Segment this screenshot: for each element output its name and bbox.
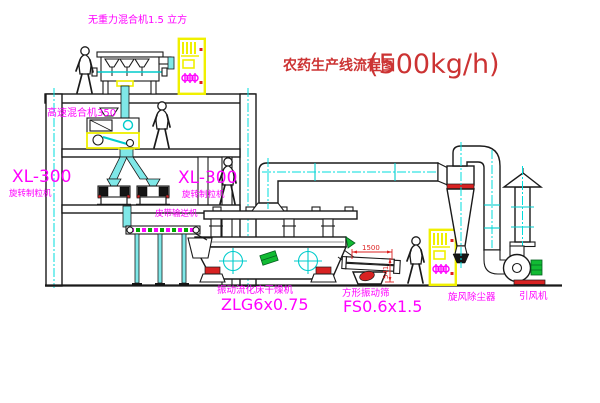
flow-arrow xyxy=(346,237,355,248)
screen-deck xyxy=(342,257,401,274)
label-screen-model: FS0.6x1.5 xyxy=(343,297,422,316)
label-granulator-name-left: 旋转制粒机 xyxy=(9,188,52,199)
person-roof xyxy=(76,47,93,93)
mixer-leg xyxy=(103,81,108,94)
conveyor-leg xyxy=(158,234,162,283)
fluid-bed-dryer xyxy=(188,207,358,282)
vibrating-screen: 1500 541 xyxy=(342,244,401,284)
process-flow-diagram: 1500 541 农药生产线流程图 (500kg/h) 无重力混合机1.5 立方 xyxy=(0,0,600,403)
dim-1500: 1500 xyxy=(362,244,380,252)
granulator-right xyxy=(136,179,170,205)
mixer-funnels xyxy=(105,59,149,76)
mixer-discharge xyxy=(117,81,133,86)
label-gravity-mixer: 无重力混合机1.5 立方 xyxy=(88,13,187,26)
label-granulator-model-left: XL-300 xyxy=(12,167,71,187)
title-capacity: (500kg/h) xyxy=(368,49,500,80)
fan-base xyxy=(514,280,545,285)
belt-dashes xyxy=(130,228,194,232)
mixer-leg xyxy=(151,81,156,94)
exhaust-duct xyxy=(252,158,458,211)
label-cyclone: 旋风除尘器 xyxy=(448,291,496,303)
induced-draft-fan xyxy=(504,246,546,285)
person-floor2 xyxy=(153,102,170,148)
belt-conveyor xyxy=(126,226,200,286)
diagram-canvas: 1500 541 农药生产线流程图 (500kg/h) 无重力混合机1.5 立方 xyxy=(0,0,600,403)
fan-motor xyxy=(531,260,542,275)
granulator-down-chute xyxy=(123,206,131,227)
floor2-slab xyxy=(62,149,240,157)
conveyor-leg xyxy=(182,234,186,283)
label-dryer-model: ZLG6x0.75 xyxy=(221,295,309,314)
dim-541: 541 xyxy=(382,266,390,279)
conveyor-leg xyxy=(135,234,139,283)
label-granulator-model-right: XL-300 xyxy=(178,168,237,188)
drive-belt xyxy=(103,137,127,144)
dryer-feed-hopper xyxy=(188,238,212,258)
mixer-down-pipe xyxy=(121,86,129,118)
duct-bottom-elbow xyxy=(484,250,506,274)
label-belt-conveyor: 皮带输送机 xyxy=(155,208,198,219)
dryer-hood xyxy=(204,211,357,219)
person-ground xyxy=(407,237,424,283)
label-high-speed-mixer: 高速混合机350 xyxy=(47,106,116,119)
diagram-title: 农药生产线流程图 (500kg/h) xyxy=(282,49,500,80)
control-cabinet-right xyxy=(430,230,456,285)
granulator-left xyxy=(97,179,131,205)
control-cabinet-top xyxy=(179,39,205,94)
label-granulator-name-right: 旋转制粒机 xyxy=(182,189,225,200)
exhaust-stack xyxy=(504,166,541,252)
label-fan: 引风机 xyxy=(519,290,548,302)
roof-slab xyxy=(45,94,255,103)
